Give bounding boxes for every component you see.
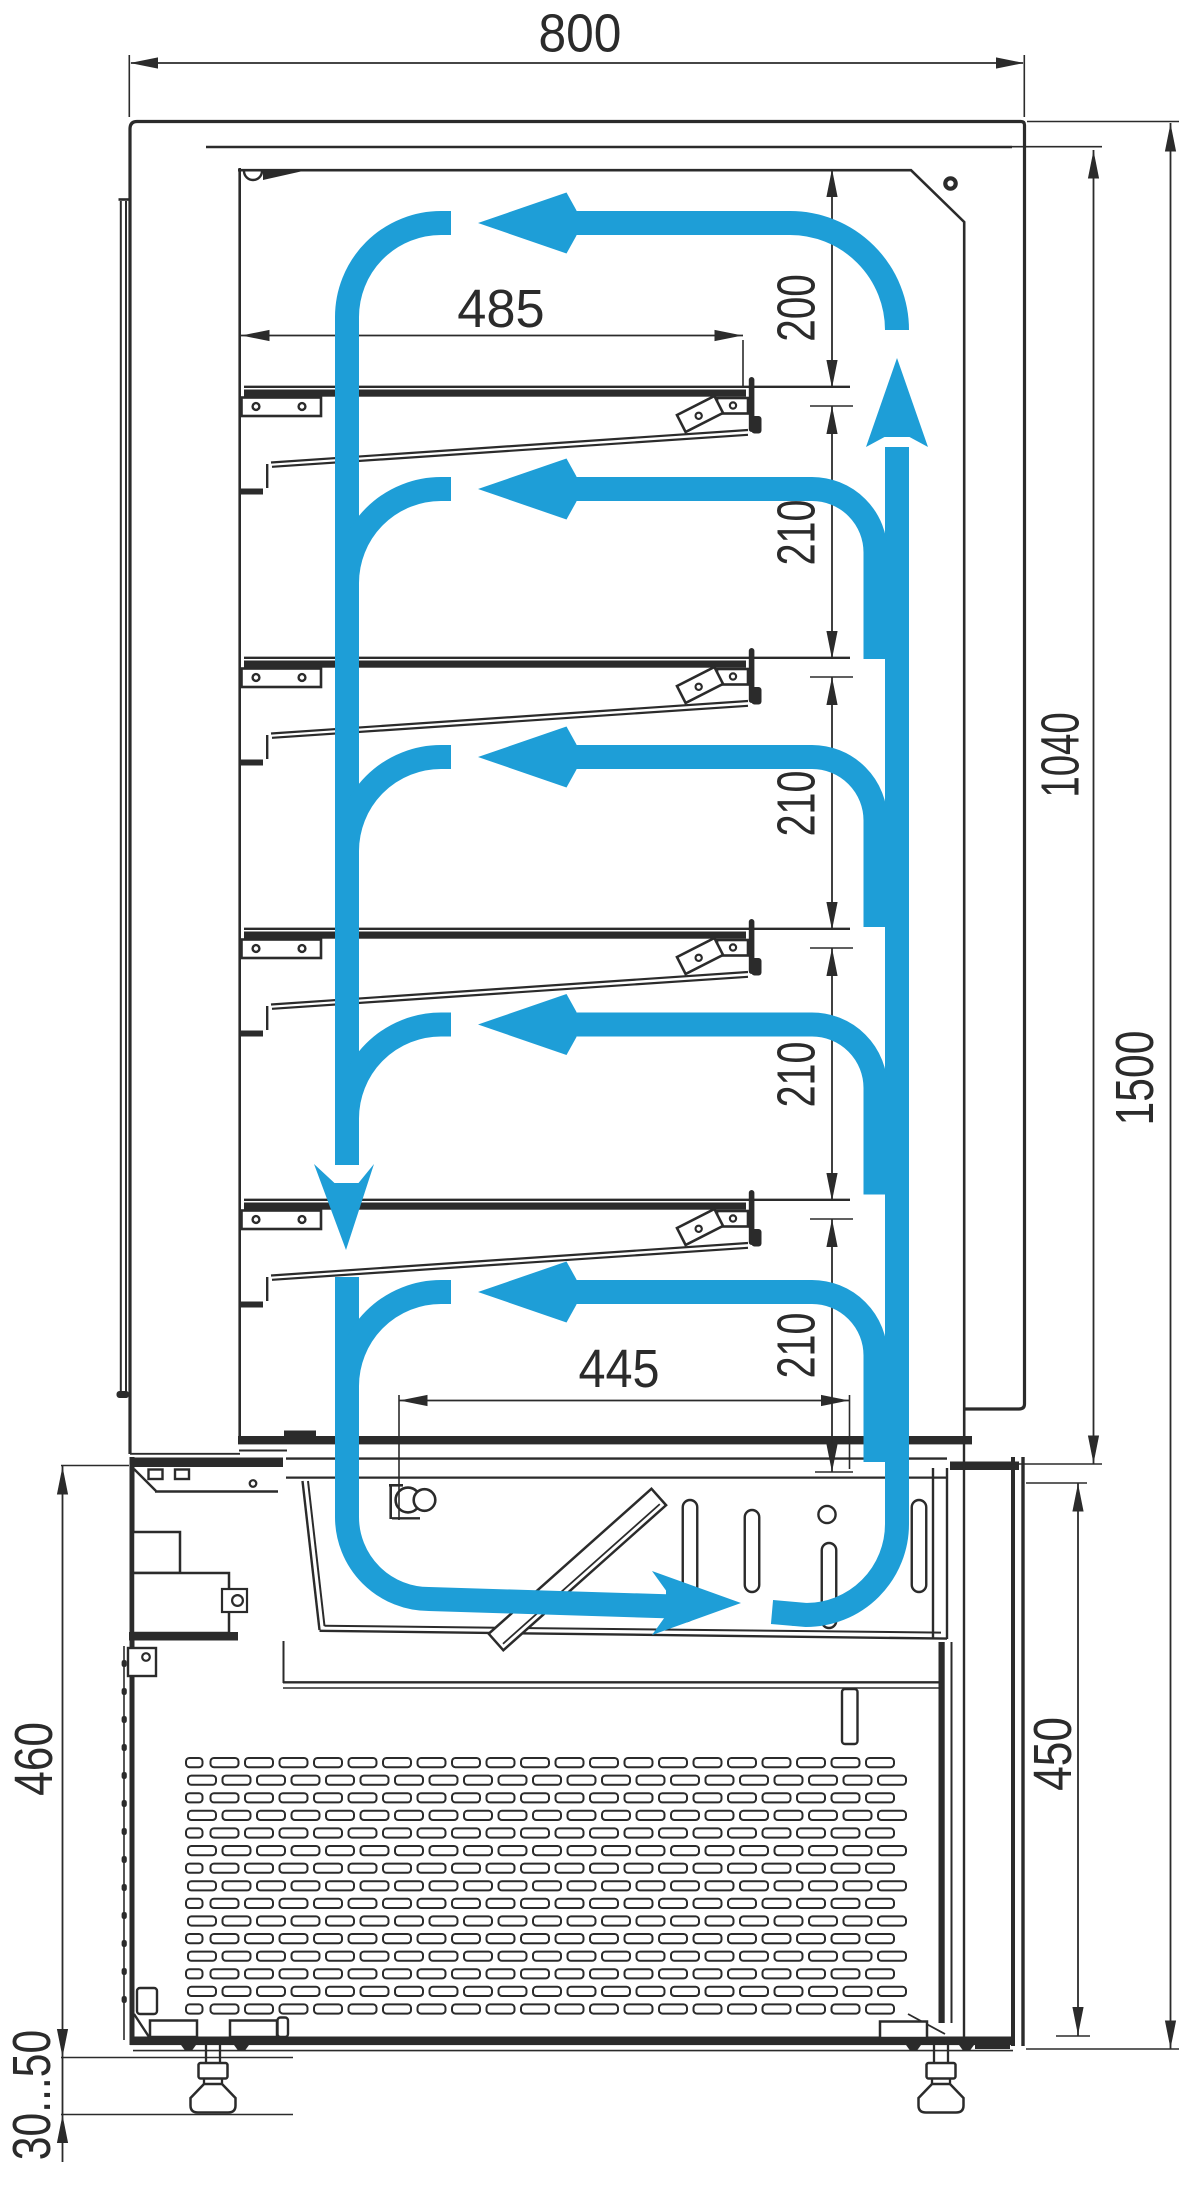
svg-text:1500: 1500 bbox=[1105, 1031, 1165, 1126]
svg-text:210: 210 bbox=[767, 500, 828, 566]
svg-text:210: 210 bbox=[767, 1313, 828, 1379]
svg-text:30...50: 30...50 bbox=[2, 2030, 62, 2160]
svg-text:460: 460 bbox=[4, 1722, 64, 1796]
svg-text:800: 800 bbox=[539, 3, 622, 63]
svg-text:445: 445 bbox=[578, 1338, 659, 1399]
svg-text:485: 485 bbox=[457, 279, 544, 339]
svg-text:1040: 1040 bbox=[1030, 712, 1090, 797]
svg-text:200: 200 bbox=[767, 274, 827, 342]
svg-text:450: 450 bbox=[1023, 1717, 1083, 1791]
svg-text:210: 210 bbox=[767, 1042, 828, 1108]
svg-text:210: 210 bbox=[767, 771, 828, 837]
